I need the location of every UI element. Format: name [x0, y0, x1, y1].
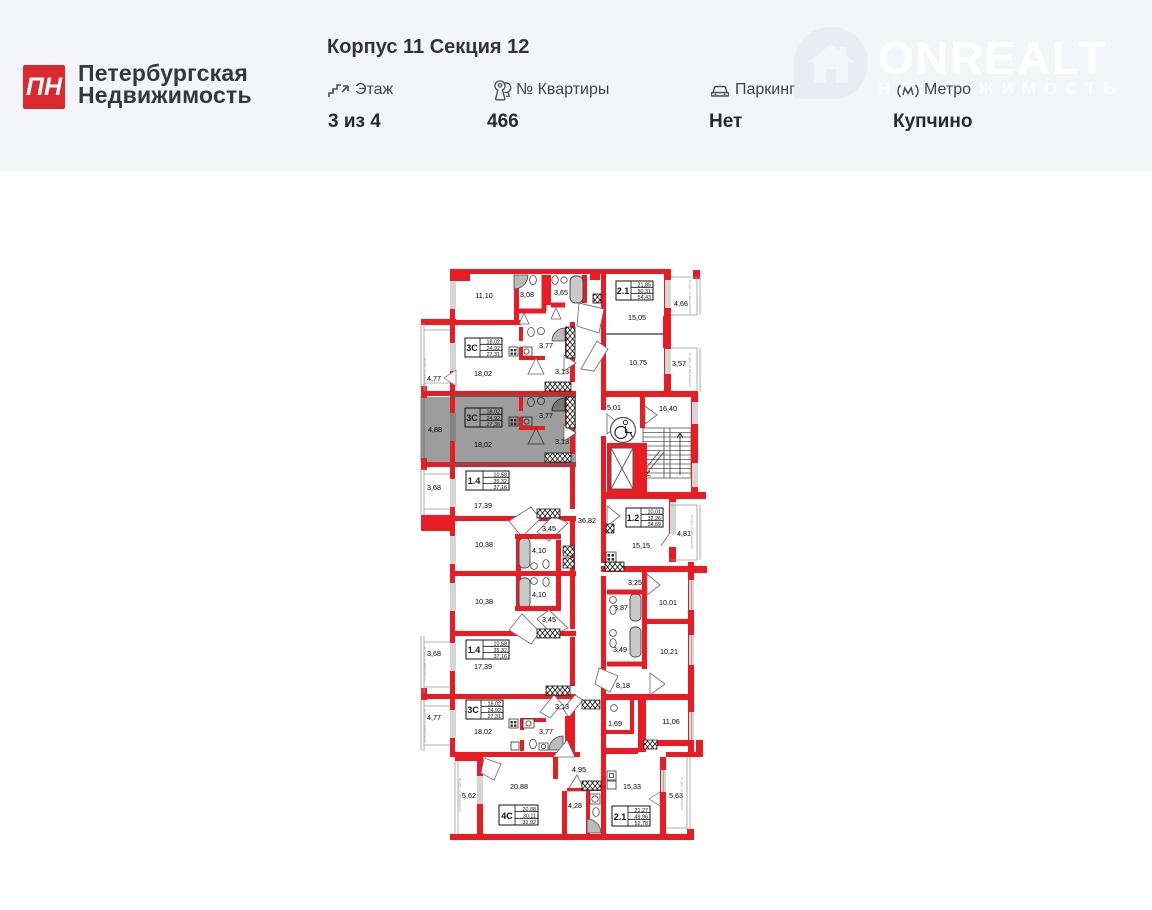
- svg-text:1.2: 1.2: [627, 513, 640, 523]
- svg-text:4,81: 4,81: [677, 529, 691, 538]
- svg-text:37,16: 37,16: [494, 654, 508, 660]
- svg-text:32,92: 32,92: [523, 820, 537, 826]
- svg-text:50,31: 50,31: [638, 289, 652, 295]
- svg-text:24,92: 24,92: [487, 416, 501, 422]
- svg-text:3,57: 3,57: [672, 359, 686, 368]
- svg-text:4,28: 4,28: [568, 801, 582, 810]
- svg-text:остекление от 0,60 м: остекление от 0,60 м: [423, 647, 427, 681]
- svg-text:3,13: 3,13: [555, 702, 569, 711]
- svg-text:4,10: 4,10: [532, 590, 546, 599]
- svg-text:10,38: 10,38: [475, 540, 493, 549]
- svg-text:34,69: 34,69: [648, 522, 662, 528]
- svg-text:30,11: 30,11: [523, 814, 536, 820]
- svg-text:17,39: 17,39: [474, 501, 492, 510]
- svg-text:8,18: 8,18: [616, 681, 630, 690]
- svg-text:15,05: 15,05: [628, 313, 646, 322]
- svg-text:18,02: 18,02: [474, 440, 492, 449]
- svg-text:18,02: 18,02: [474, 727, 492, 736]
- svg-text:16,40: 16,40: [659, 404, 677, 413]
- svg-text:36,82: 36,82: [578, 516, 596, 525]
- svg-text:3,25: 3,25: [628, 578, 642, 587]
- svg-text:1,69: 1,69: [608, 719, 622, 728]
- svg-text:21,27: 21,27: [635, 808, 649, 814]
- svg-text:2.1: 2.1: [617, 286, 630, 296]
- svg-text:4,88: 4,88: [428, 425, 442, 434]
- svg-text:27,31: 27,31: [488, 714, 502, 720]
- svg-text:3,77: 3,77: [539, 727, 553, 736]
- svg-text:18,02: 18,02: [474, 369, 492, 378]
- svg-text:54,43: 54,43: [638, 295, 652, 301]
- svg-text:27,36: 27,36: [487, 422, 501, 428]
- svg-text:10,58: 10,58: [494, 473, 508, 479]
- svg-text:15,15: 15,15: [632, 541, 650, 550]
- svg-text:3,77: 3,77: [539, 411, 553, 420]
- svg-text:35,32: 35,32: [494, 479, 508, 485]
- svg-text:17,39: 17,39: [474, 662, 492, 671]
- svg-text:3,45: 3,45: [542, 524, 556, 533]
- svg-text:3,68: 3,68: [427, 649, 441, 658]
- svg-text:18,02: 18,02: [487, 340, 501, 346]
- svg-text:остекление от 0,60 м: остекление от 0,60 м: [423, 358, 427, 392]
- svg-text:3С: 3С: [467, 705, 479, 715]
- svg-text:остекление от 0,60 м: остекление от 0,60 м: [688, 280, 692, 314]
- svg-text:4,66: 4,66: [674, 299, 688, 308]
- svg-text:15,33: 15,33: [623, 782, 641, 791]
- svg-text:1.4: 1.4: [468, 476, 481, 486]
- svg-text:5,62: 5,62: [462, 791, 476, 800]
- svg-text:52,78: 52,78: [635, 821, 649, 827]
- svg-text:3,65: 3,65: [554, 288, 568, 297]
- svg-text:11,10: 11,10: [475, 291, 492, 300]
- svg-text:остекление от 0,60 м: остекление от 0,60 м: [680, 777, 684, 811]
- svg-text:3С: 3С: [466, 343, 478, 353]
- svg-text:10,01: 10,01: [659, 598, 677, 607]
- svg-text:3,45: 3,45: [542, 615, 556, 624]
- svg-text:3С: 3С: [466, 413, 478, 423]
- svg-text:4,10: 4,10: [532, 546, 546, 555]
- svg-text:24,92: 24,92: [487, 346, 501, 352]
- svg-text:11,06: 11,06: [662, 717, 679, 726]
- svg-text:10,21: 10,21: [660, 647, 678, 656]
- svg-text:5,01: 5,01: [607, 403, 621, 412]
- svg-text:10,01: 10,01: [648, 510, 662, 516]
- svg-text:18,02: 18,02: [488, 702, 502, 708]
- svg-text:35,32: 35,32: [494, 648, 508, 654]
- svg-text:остекление от 0,60 м: остекление от 0,60 м: [458, 778, 462, 812]
- svg-text:4С: 4С: [501, 811, 513, 821]
- svg-text:49,96: 49,96: [635, 815, 649, 821]
- svg-text:остекление от 0,60 м: остекление от 0,60 м: [688, 353, 692, 387]
- svg-text:20,88: 20,88: [510, 782, 528, 791]
- svg-text:32,26: 32,26: [648, 516, 662, 522]
- svg-text:10,58: 10,58: [494, 642, 508, 648]
- svg-text:2.1: 2.1: [614, 812, 627, 822]
- svg-text:10,38: 10,38: [475, 597, 493, 606]
- svg-text:20,88: 20,88: [523, 807, 537, 813]
- svg-text:4,77: 4,77: [427, 374, 441, 383]
- svg-text:3,08: 3,08: [520, 290, 534, 299]
- svg-text:4,95: 4,95: [572, 765, 586, 774]
- svg-text:37,16: 37,16: [494, 485, 508, 491]
- svg-text:10,75: 10,75: [629, 358, 647, 367]
- svg-text:3,77: 3,77: [539, 341, 553, 350]
- svg-text:21,85: 21,85: [638, 283, 652, 289]
- svg-text:остекление от 0,60 м: остекление от 0,60 м: [423, 709, 427, 743]
- svg-text:4,77: 4,77: [427, 713, 441, 722]
- svg-text:1.4: 1.4: [468, 645, 481, 655]
- svg-text:3,68: 3,68: [427, 483, 441, 492]
- svg-text:27,31: 27,31: [487, 352, 501, 358]
- svg-text:остекление от 0,60 м: остекление от 0,60 м: [690, 515, 694, 549]
- svg-text:24,92: 24,92: [488, 708, 502, 714]
- svg-text:18,02: 18,02: [487, 410, 501, 416]
